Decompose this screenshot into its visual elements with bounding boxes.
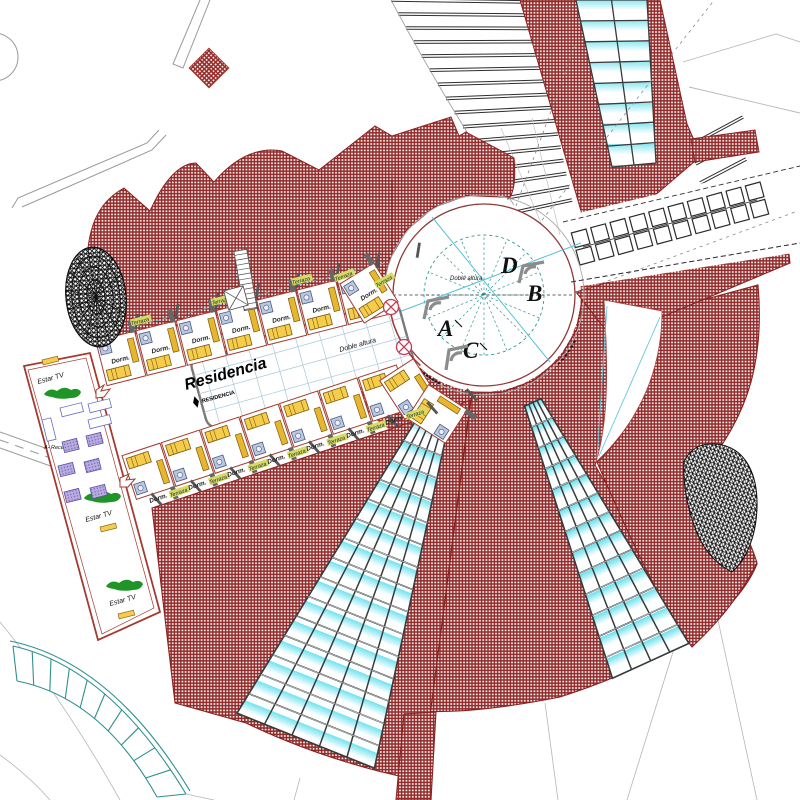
svg-text:C: C [463,338,479,363]
svg-text:B: B [526,281,542,306]
svg-text:Doble altura: Doble altura [450,276,483,282]
svg-text:A: A [436,316,453,341]
svg-text:D: D [500,253,518,278]
